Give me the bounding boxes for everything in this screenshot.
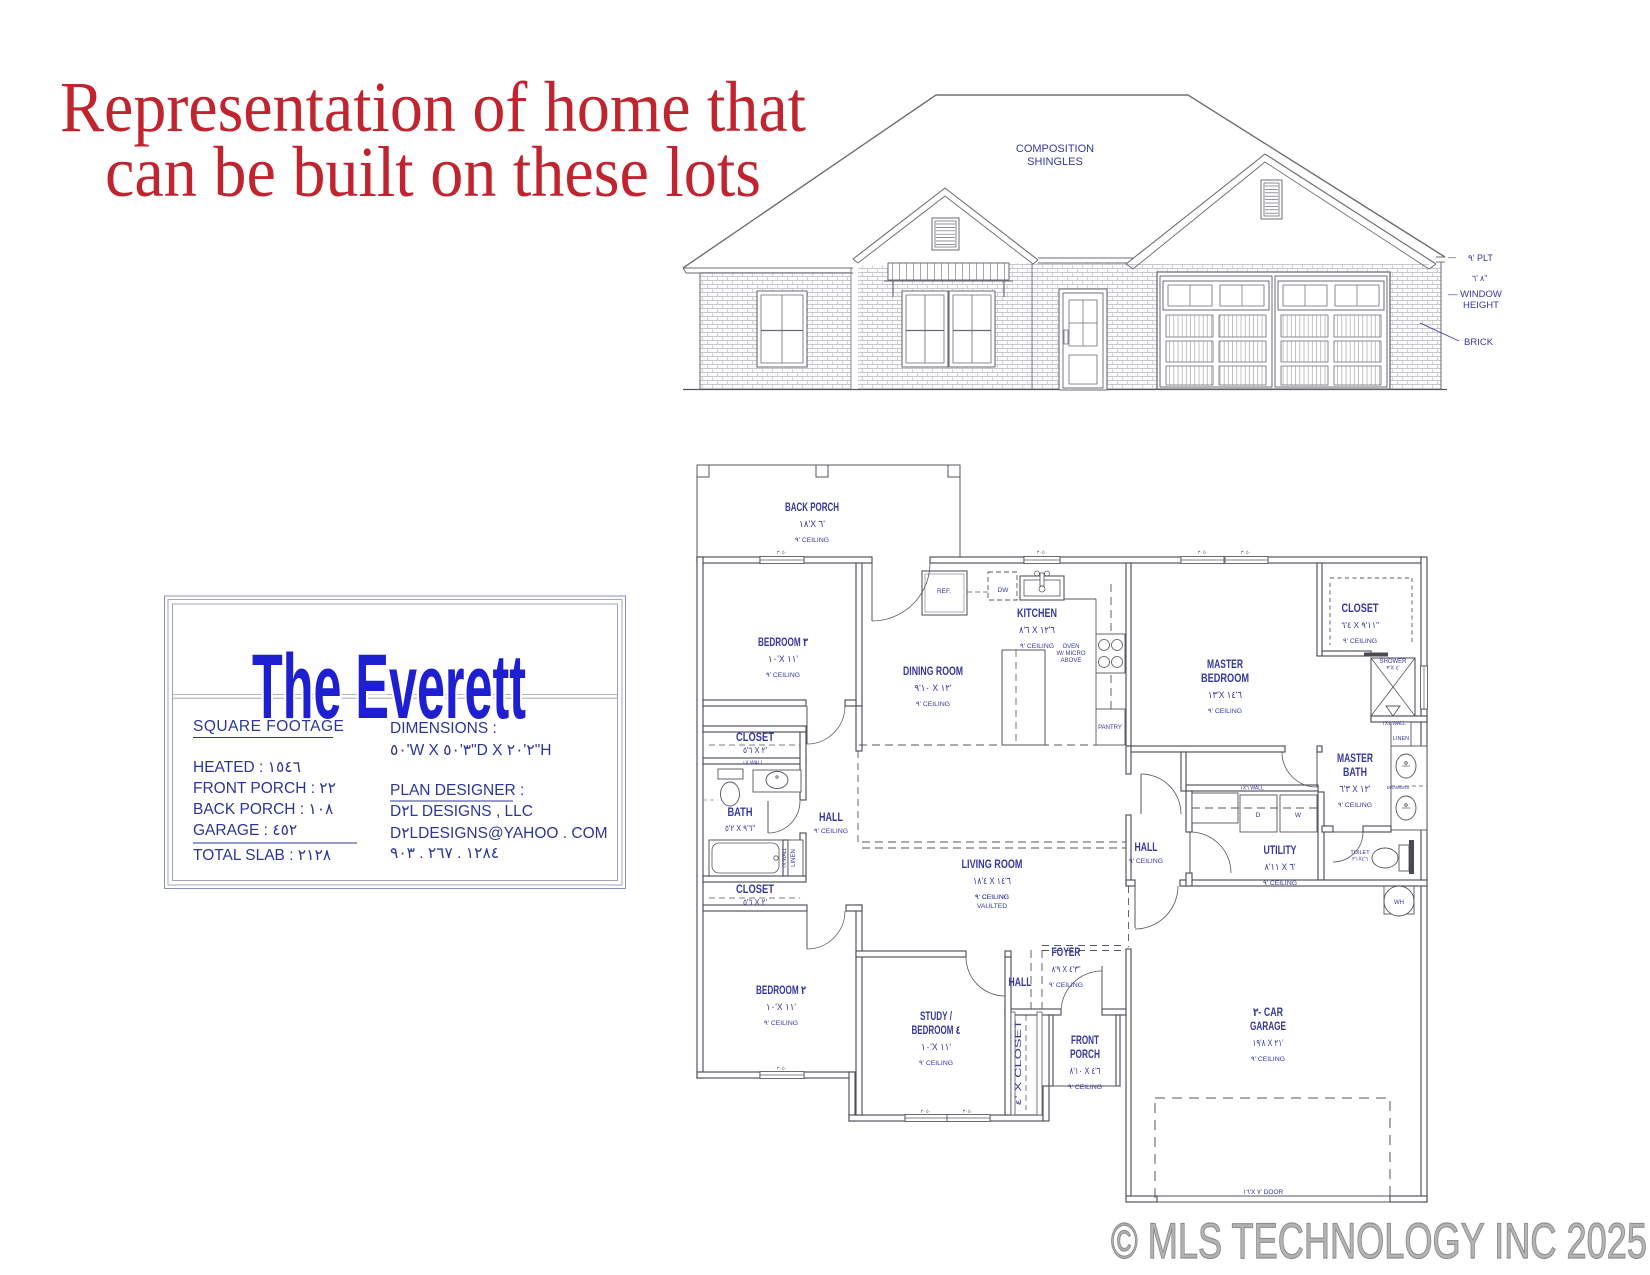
- svg-text:‭D٢L DESIGNS , LLC‬: ‭D٢L DESIGNS , LLC‬: [390, 803, 533, 820]
- svg-text:‭٨'١١ X ٦'‬: ‭٨'١١ X ٦'‬: [1265, 862, 1296, 873]
- svg-text:‭٨'٦ X ١٢'٦‬: ‭٨'٦ X ١٢'٦‬: [1019, 625, 1055, 636]
- svg-text:WH: WH: [1394, 900, 1404, 906]
- svg-text:‭٣٠٥٠‬: ‭٣٠٥٠‬: [777, 550, 788, 556]
- svg-text:‭١٨'٤ X ١٤'٦‬: ‭١٨'٤ X ١٤'٦‬: [973, 876, 1011, 887]
- svg-text:GARAGE: GARAGE: [1250, 1019, 1286, 1033]
- svg-text:UTILITY: UTILITY: [1264, 843, 1297, 857]
- svg-text:SHOWER: SHOWER: [1380, 659, 1408, 665]
- svg-text:PORCH: PORCH: [1070, 1047, 1100, 1061]
- svg-text:‭١X٦ WALL‬: ‭١X٦ WALL‬: [1240, 786, 1264, 792]
- svg-text:—: —: [1448, 253, 1456, 262]
- svg-text:‭BEDROOM ٣‬: ‭BEDROOM ٣‬: [758, 635, 808, 649]
- svg-text:OVEN: OVEN: [1062, 644, 1079, 650]
- svg-text:‭٣٠٥٠‬: ‭٣٠٥٠‬: [1241, 550, 1252, 556]
- svg-text:COMPOSITION: COMPOSITION: [1016, 143, 1094, 155]
- svg-text:VAULTED: VAULTED: [977, 903, 1007, 910]
- svg-text:CLOSET: CLOSET: [736, 732, 774, 744]
- svg-text:‭٩' CEILING‬: ‭٩' CEILING‬: [1049, 982, 1083, 989]
- svg-text:‭٩' CEILING‬: ‭٩' CEILING‬: [1129, 858, 1163, 865]
- svg-text:‭٩'١٠ X ١٢'‬: ‭٩'١٠ X ١٢'‬: [915, 683, 952, 694]
- svg-text:‭٣'١X٤'٦‬: ‭٣'١X٤'٦‬: [1352, 857, 1368, 863]
- svg-text:HALL: HALL: [1135, 842, 1158, 854]
- svg-text:HALL: HALL: [819, 810, 843, 824]
- svg-text:TOILET: TOILET: [1350, 850, 1370, 856]
- svg-text:D: D: [1256, 812, 1261, 819]
- svg-text:CLOSET: CLOSET: [1342, 603, 1379, 615]
- svg-text:DW: DW: [998, 587, 1010, 594]
- svg-text:ABOVE: ABOVE: [1061, 658, 1082, 664]
- svg-text:‭BEDROOM ٢‬: ‭BEDROOM ٢‬: [756, 983, 806, 997]
- svg-text:‭١٠'X ١١'‬: ‭١٠'X ١١'‬: [766, 1002, 796, 1013]
- svg-text:‭٨'٩ X ٤'٣"‬: ‭٨'٩ X ٤'٣"‬: [1052, 964, 1081, 974]
- svg-text:LINEN: LINEN: [791, 849, 797, 867]
- svg-text:‭D٢LDESIGNS@YAHOO . COM‬: ‭D٢LDESIGNS@YAHOO . COM‬: [390, 825, 608, 842]
- svg-text:‭١٦'X ٧' DOOR‬: ‭١٦'X ٧' DOOR‬: [1243, 1189, 1284, 1196]
- svg-text:REF.: REF.: [937, 588, 951, 595]
- svg-text:‭٣٠٥٠‬: ‭٣٠٥٠‬: [963, 1109, 974, 1115]
- svg-text:‭٣٠٥٠‬: ‭٣٠٥٠‬: [1198, 550, 1209, 556]
- svg-text:LINEN: LINEN: [1393, 736, 1409, 742]
- svg-text:‭٣٠٥٠‬: ‭٣٠٥٠‬: [1037, 550, 1048, 556]
- svg-text:PLAN DESIGNER :: PLAN DESIGNER :: [390, 782, 524, 799]
- svg-text:‭GARAGE : ٤٥٢‬: ‭GARAGE : ٤٥٢‬: [193, 822, 297, 839]
- svg-text:‭FRONT PORCH : ٢٢‬: ‭FRONT PORCH : ٢٢‬: [193, 780, 336, 797]
- svg-text:BACK PORCH: BACK PORCH: [785, 500, 839, 514]
- svg-text:‭١X WALL‬: ‭١X WALL‬: [743, 761, 764, 767]
- svg-text:HEIGHT: HEIGHT: [1463, 300, 1499, 311]
- svg-text:‭٦'٣ X ١٢'‬: ‭٦'٣ X ١٢'‬: [1340, 784, 1371, 795]
- svg-text:‭٩' CEILING‬: ‭٩' CEILING‬: [1020, 643, 1054, 650]
- svg-text:‭١X٤ WALL‬: ‭١X٤ WALL‬: [1382, 721, 1406, 727]
- svg-text:BATH: BATH: [1343, 765, 1367, 779]
- svg-text:DRAWERS: DRAWERS: [1387, 785, 1410, 790]
- svg-text:STUDY /: STUDY /: [920, 1009, 952, 1023]
- svg-text:‭BACK PORCH : ١٠٨‬: ‭BACK PORCH : ١٠٨‬: [193, 801, 333, 818]
- svg-text:MASTER: MASTER: [1337, 751, 1373, 765]
- svg-text:‭٩٠٣ . ٢٦٧ . ١٢٨٤‬: ‭٩٠٣ . ٢٦٧ . ١٢٨٤‬: [390, 845, 499, 862]
- svg-text:‭٦' ٨"‬: ‭٦' ٨"‬: [1472, 274, 1487, 283]
- svg-text:‭٥'٦ X ٢'‬: ‭٥'٦ X ٢'‬: [743, 897, 767, 907]
- svg-text:‭٩' CEILING‬: ‭٩' CEILING‬: [919, 1060, 953, 1067]
- svg-text:‭٨'١٠ X ٤'٦‬: ‭٨'١٠ X ٤'٦‬: [1070, 1066, 1101, 1077]
- svg-text:— WINDOW: — WINDOW: [1448, 289, 1502, 300]
- svg-text:‭٩' CEILING‬: ‭٩' CEILING‬: [1263, 880, 1297, 887]
- svg-text:HALL: HALL: [1009, 977, 1032, 989]
- svg-text:‭٥'٦ X ٢'‬: ‭٥'٦ X ٢'‬: [743, 745, 767, 755]
- svg-text:‭١٣'X ١٤'٦‬: ‭١٣'X ١٤'٦‬: [1208, 690, 1242, 701]
- svg-text:‭٩' CEILING‬: ‭٩' CEILING‬: [1338, 802, 1372, 809]
- svg-text:‭٣٠٥٠‬: ‭٣٠٥٠‬: [921, 1109, 932, 1115]
- svg-text:FOYER: FOYER: [1052, 945, 1081, 959]
- svg-text:‭٩' CEILING‬: ‭٩' CEILING‬: [814, 828, 848, 835]
- svg-text:‭٩' PLT‬: ‭٩' PLT‬: [1468, 253, 1493, 263]
- svg-text:‭٥'٢ X ٩'٦"‬: ‭٥'٢ X ٩'٦"‬: [725, 823, 755, 833]
- svg-text:KITCHEN: KITCHEN: [1017, 606, 1057, 620]
- svg-text:‭٩' CEILING‬: ‭٩' CEILING‬: [764, 1020, 798, 1027]
- svg-text:‭TOTAL SLAB : ٢١٢٨‬: ‭TOTAL SLAB : ٢١٢٨‬: [193, 847, 331, 864]
- svg-text:‭٩' CEILING‬: ‭٩' CEILING‬: [975, 894, 1009, 901]
- svg-text:‭٦'٤ X ٩'١١"‬: ‭٦'٤ X ٩'١١"‬: [1341, 620, 1379, 630]
- svg-text:W: W: [1295, 812, 1302, 819]
- svg-text:can be built on these lots: can be built on these lots: [105, 132, 761, 212]
- svg-text:SQUARE FOOTAGE: SQUARE FOOTAGE: [193, 718, 344, 735]
- svg-text:‭٩' CEILING‬: ‭٩' CEILING‬: [766, 672, 800, 679]
- svg-text:PANTRY: PANTRY: [1098, 725, 1122, 731]
- svg-text:‭١٠'X ١١'‬: ‭١٠'X ١١'‬: [921, 1042, 951, 1053]
- svg-text:‭٩' CEILING‬: ‭٩' CEILING‬: [1251, 1056, 1285, 1063]
- svg-text:© MLS TECHNOLOGY INC 2025: © MLS TECHNOLOGY INC 2025: [1111, 1213, 1647, 1269]
- svg-text:‭٣٠٥٠‬: ‭٣٠٥٠‬: [777, 1066, 788, 1072]
- svg-text:BRICK: BRICK: [1464, 337, 1494, 348]
- svg-text:‭٤' X CLOSET‬: ‭٤' X CLOSET‬: [1014, 1020, 1023, 1106]
- svg-text:‭HEATED : ١٥٤٦‬: ‭HEATED : ١٥٤٦‬: [193, 759, 301, 776]
- svg-text:DIMENSIONS :: DIMENSIONS :: [390, 720, 497, 737]
- svg-text:‭٩' CEILING‬: ‭٩' CEILING‬: [1208, 708, 1242, 715]
- svg-text:‭٩' CEILING‬: ‭٩' CEILING‬: [1343, 638, 1377, 645]
- svg-text:DINING ROOM: DINING ROOM: [903, 664, 963, 678]
- svg-text:‭١X WALL‬: ‭١X WALL‬: [782, 847, 788, 868]
- svg-text:FRONT: FRONT: [1071, 1033, 1099, 1047]
- svg-text:‭١٨'X ٦'‬: ‭١٨'X ٦'‬: [799, 519, 825, 530]
- svg-text:‭٩' CEILING‬: ‭٩' CEILING‬: [916, 701, 950, 708]
- svg-text:‭١٩'٨ X ٢١'‬: ‭١٩'٨ X ٢١'‬: [1253, 1038, 1284, 1049]
- svg-text:W/ MICRO: W/ MICRO: [1057, 651, 1086, 657]
- svg-text:BEDROOM: BEDROOM: [1201, 671, 1249, 685]
- svg-text:MASTER: MASTER: [1207, 657, 1243, 671]
- svg-text:‭٢- CAR‬: ‭٢- CAR‬: [1253, 1005, 1283, 1019]
- svg-text:‭٥٠'W X ٥٠'٣"D X ٢٠'٢"H‬: ‭٥٠'W X ٥٠'٣"D X ٢٠'٢"H‬: [390, 742, 551, 759]
- svg-text:LIVING ROOM: LIVING ROOM: [962, 857, 1023, 871]
- svg-text:‭٩' CEILING‬: ‭٩' CEILING‬: [795, 537, 829, 544]
- svg-text:‭BEDROOM ٤‬: ‭BEDROOM ٤‬: [912, 1023, 961, 1037]
- svg-text:SHINGLES: SHINGLES: [1027, 156, 1083, 168]
- svg-text:‭١٠'X ١١'‬: ‭١٠'X ١١'‬: [768, 654, 798, 665]
- svg-text:CLOSET: CLOSET: [736, 884, 774, 896]
- svg-text:BATH: BATH: [728, 805, 753, 819]
- svg-text:‭٩' CEILING‬: ‭٩' CEILING‬: [1068, 1084, 1102, 1091]
- svg-text:‭٣'X ٤'‬: ‭٣'X ٤'‬: [1386, 666, 1399, 672]
